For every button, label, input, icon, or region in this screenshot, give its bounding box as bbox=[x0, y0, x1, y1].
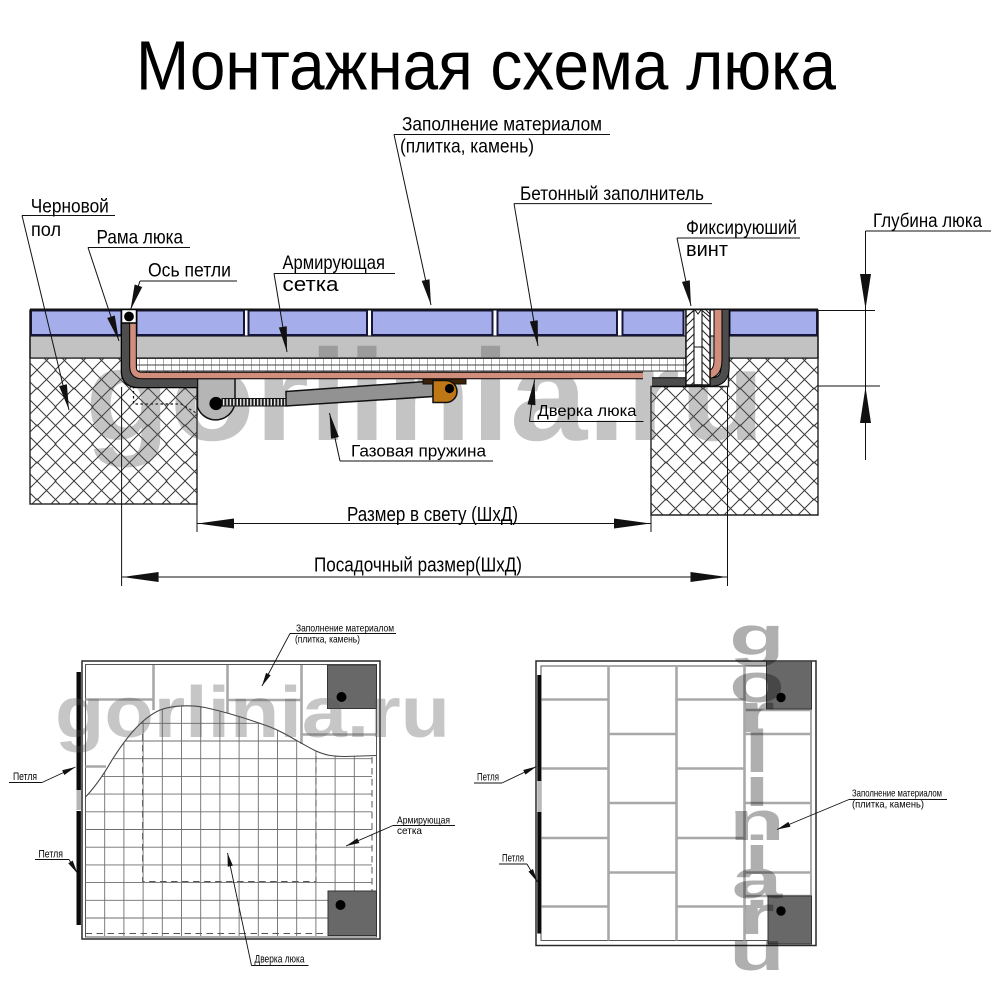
svg-text:Фиксируюший: Фиксируюший bbox=[686, 217, 797, 239]
svg-text:сетка: сетка bbox=[283, 273, 340, 296]
svg-text:Черновой: Черновой bbox=[31, 196, 109, 218]
svg-text:винт: винт bbox=[686, 238, 729, 261]
svg-text:gorlinia.ru: gorlinia.ru bbox=[55, 673, 450, 753]
svg-text:сетка: сетка bbox=[397, 825, 422, 837]
svg-text:Дверка люка: Дверка люка bbox=[538, 403, 637, 420]
svg-text:Дверка люка: Дверка люка bbox=[255, 954, 306, 966]
svg-text:(плитка, камень): (плитка, камень) bbox=[400, 136, 534, 158]
svg-text:Глубина люка: Глубина люка bbox=[873, 211, 982, 232]
svg-text:Заполнение материалом: Заполнение материалом bbox=[402, 114, 602, 136]
svg-text:Петля: Петля bbox=[502, 853, 524, 865]
svg-text:Петля: Петля bbox=[13, 771, 37, 783]
svg-text:Армирующая: Армирующая bbox=[283, 252, 386, 274]
svg-text:u: u bbox=[729, 920, 784, 982]
svg-text:Рама люка: Рама люка bbox=[97, 227, 184, 249]
svg-text:Посадочный размер(ШхД): Посадочный размер(ШхД) bbox=[314, 555, 522, 577]
svg-text:(плитка, камень): (плитка, камень) bbox=[852, 799, 924, 811]
svg-text:Петля: Петля bbox=[39, 849, 64, 861]
svg-text:пол: пол bbox=[31, 219, 61, 241]
svg-text:Газовая пружина: Газовая пружина bbox=[351, 443, 487, 461]
svg-text:Размер в свету (ШхД): Размер в свету (ШхД) bbox=[347, 504, 518, 526]
svg-text:(плитка, камень): (плитка, камень) bbox=[295, 634, 360, 646]
svg-text:Монтажная схема люка: Монтажная схема люка bbox=[136, 27, 836, 105]
svg-text:Петля: Петля bbox=[477, 772, 499, 784]
svg-text:Бетонный заполнитель: Бетонный заполнитель bbox=[520, 183, 704, 205]
svg-text:Ось петли: Ось петли bbox=[148, 260, 231, 282]
